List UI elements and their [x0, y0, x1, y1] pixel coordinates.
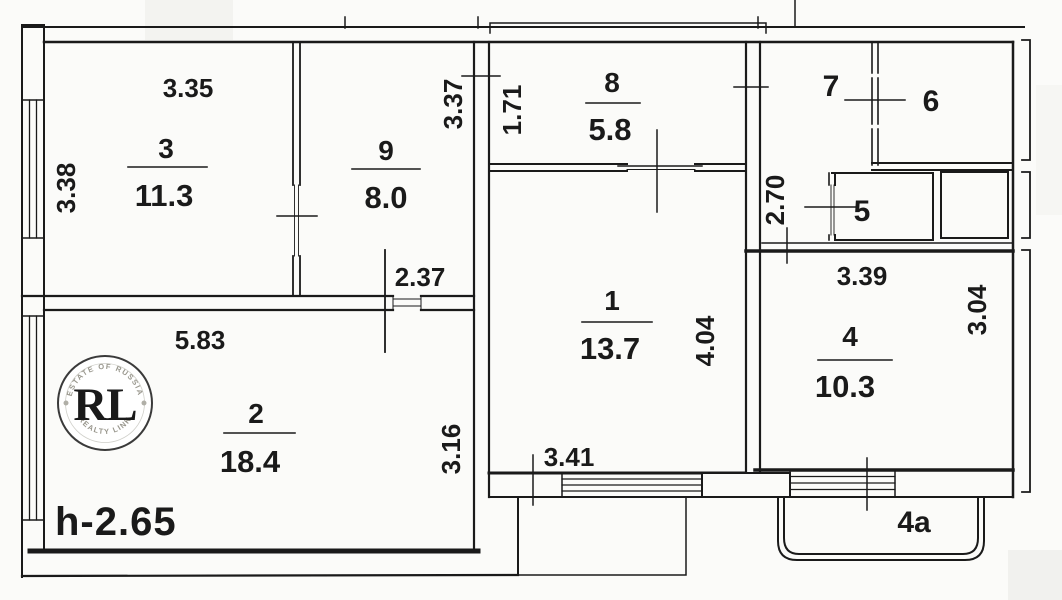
room-9-label: 9 8.0	[352, 135, 420, 215]
floor-plan-page: 3.35 3.38 3.37 2.37 1.71 2.70 3.39 3.04 …	[0, 0, 1062, 600]
pillar	[702, 473, 790, 497]
dim-room2-right: 3.16	[436, 424, 466, 475]
dim-hall-left: 2.70	[760, 175, 790, 226]
room-2-label: 2 18.4	[220, 398, 295, 479]
floor-plan-drawing: 3.35 3.38 3.37 2.37 1.71 2.70 3.39 3.04 …	[0, 0, 1062, 600]
room-4-label: 4 10.3	[815, 321, 892, 404]
dim-room1-bottom: 3.41	[544, 442, 595, 472]
room-2-number: 2	[248, 398, 264, 429]
dim-room9-bottom: 2.37	[395, 262, 446, 292]
dim-room9-right: 3.37	[438, 79, 468, 130]
room-3-area: 11.3	[135, 178, 194, 213]
room-3-number: 3	[158, 133, 174, 164]
room-5-number: 5	[854, 195, 871, 228]
room-4-area: 10.3	[815, 369, 875, 404]
room-9-area: 8.0	[364, 180, 407, 215]
room-6-number: 6	[923, 85, 940, 118]
room-1-number: 1	[604, 285, 620, 316]
logo-monogram: RL	[73, 379, 136, 431]
balcony-label: 4a	[897, 506, 931, 539]
room-4-number: 4	[842, 321, 858, 352]
room-8-area: 5.8	[588, 112, 631, 147]
room-3-label: 3 11.3	[128, 133, 207, 213]
logo-dot-right	[142, 401, 147, 406]
room-labels: 3 11.3 9 8.0 8 5.8 1 13.7 2 18.4 4 10.3	[128, 67, 939, 479]
room-1-label: 1 13.7	[580, 285, 652, 366]
room-7-number: 7	[823, 70, 840, 103]
dim-room2-top: 5.83	[175, 325, 226, 355]
dim-room8-left: 1.71	[497, 85, 527, 136]
room-8-number: 8	[604, 67, 620, 98]
dim-room4-top: 3.39	[837, 261, 888, 291]
dim-room3-top: 3.35	[163, 73, 214, 103]
dimension-labels: 3.35 3.38 3.37 2.37 1.71 2.70 3.39 3.04 …	[51, 73, 992, 474]
dim-room4-right: 3.04	[962, 284, 992, 335]
dim-room3-left: 3.38	[51, 163, 81, 214]
room-9-number: 9	[378, 135, 394, 166]
agency-logo: ESTATE OF RUSSIA REALTY LINK RL	[58, 356, 152, 450]
room-1-area: 13.7	[580, 331, 640, 366]
dim-room1-right: 4.04	[690, 315, 720, 366]
ceiling-height-label: h-2.65	[55, 500, 177, 544]
logo-dot-left	[64, 401, 69, 406]
room-8-label: 8 5.8	[586, 67, 640, 147]
room-2-area: 18.4	[220, 444, 281, 479]
